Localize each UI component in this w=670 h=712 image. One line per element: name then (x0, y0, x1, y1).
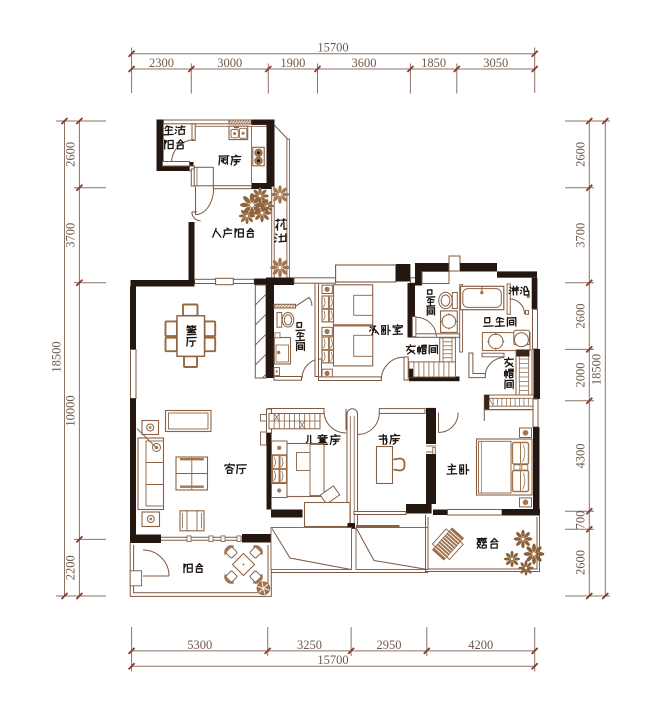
svg-text:3700: 3700 (574, 223, 588, 248)
svg-text:18500: 18500 (590, 354, 604, 385)
svg-text:2600: 2600 (574, 550, 588, 575)
svg-text:1900: 1900 (280, 56, 305, 70)
svg-text:2950: 2950 (377, 638, 402, 652)
svg-text:4300: 4300 (574, 444, 588, 469)
svg-text:2200: 2200 (64, 555, 78, 580)
svg-text:1850: 1850 (421, 56, 446, 70)
svg-text:2600: 2600 (574, 142, 588, 167)
svg-text:3250: 3250 (297, 638, 322, 652)
svg-text:700: 700 (574, 511, 588, 530)
svg-text:3700: 3700 (64, 223, 78, 248)
svg-text:15700: 15700 (317, 653, 348, 667)
svg-text:10000: 10000 (64, 395, 78, 426)
svg-text:2300: 2300 (149, 56, 174, 70)
svg-text:2600: 2600 (64, 142, 78, 167)
svg-text:2000: 2000 (574, 363, 588, 388)
svg-text:15700: 15700 (317, 41, 348, 55)
svg-text:5300: 5300 (187, 638, 212, 652)
svg-text:3600: 3600 (352, 56, 377, 70)
svg-text:4200: 4200 (468, 638, 493, 652)
svg-text:2600: 2600 (574, 304, 588, 329)
svg-text:3050: 3050 (483, 56, 508, 70)
svg-text:18500: 18500 (50, 341, 64, 372)
svg-text:3000: 3000 (217, 56, 242, 70)
